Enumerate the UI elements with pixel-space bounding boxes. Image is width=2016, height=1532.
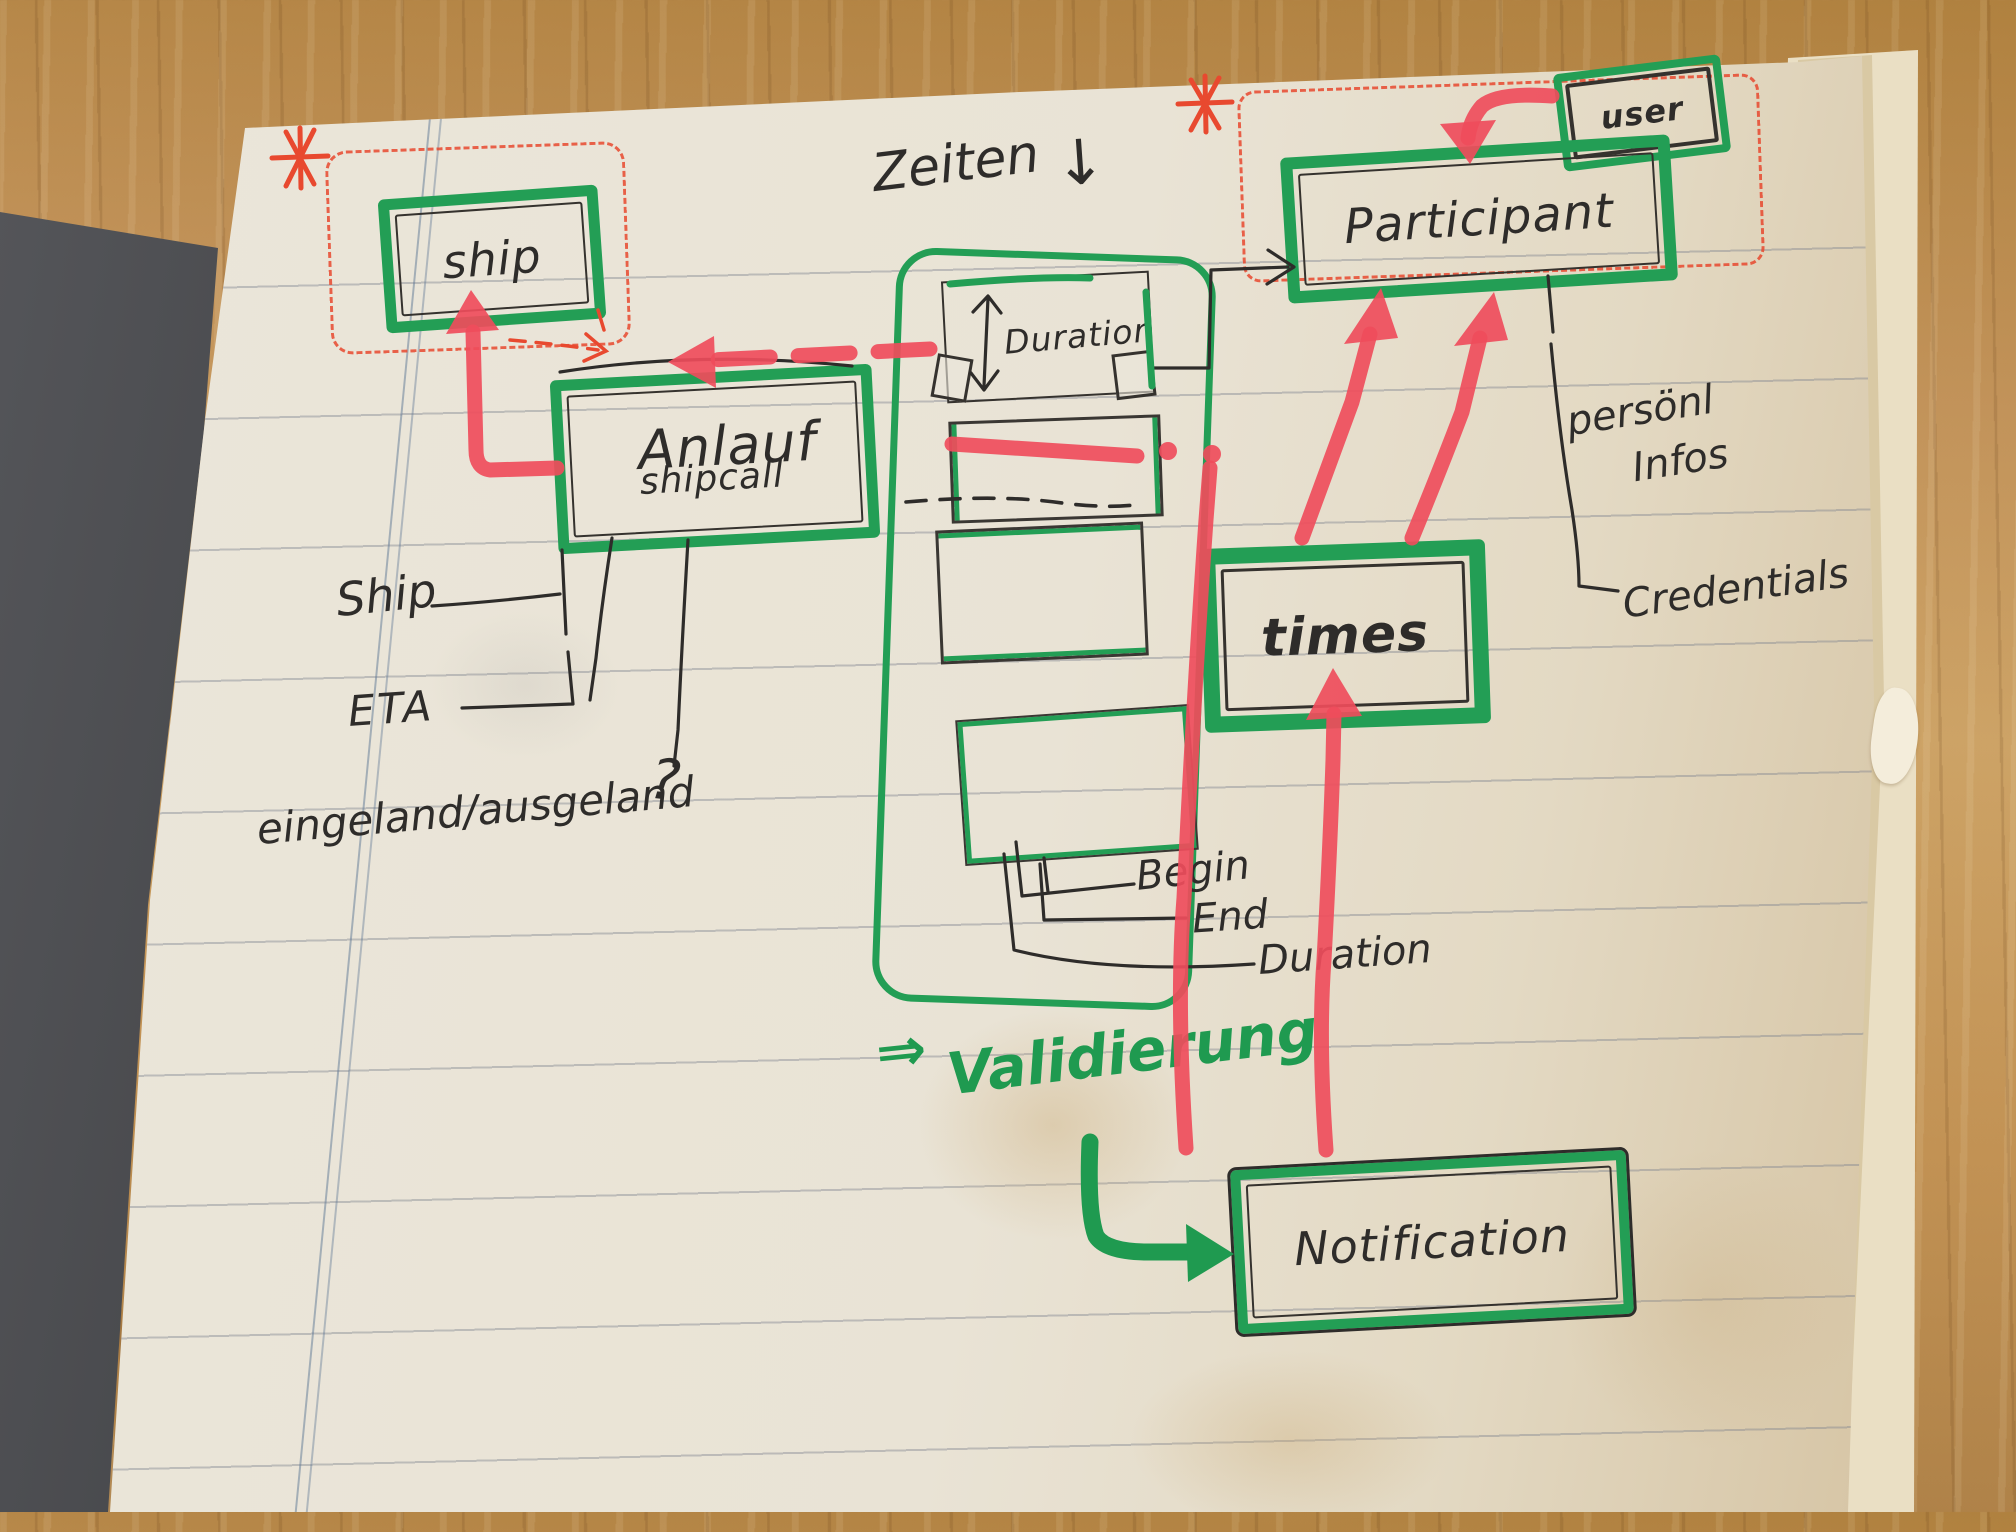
times-box: times [1199, 539, 1491, 733]
end-label: End [1190, 891, 1269, 942]
zeit-row-box-3 [957, 706, 1196, 864]
zeit-row-box-2 [935, 522, 1149, 665]
zeit-row-box-1 [948, 414, 1163, 523]
zeiten-down-arrow-icon: ↓ [1052, 124, 1109, 200]
duration-corner-square-right [1111, 350, 1156, 401]
anlauf-box: Anlauf shipcall [550, 364, 881, 555]
ship-attr-label: Ship [333, 563, 438, 627]
notification-box: Notification [1230, 1150, 1634, 1335]
eta-label: ETA [346, 681, 435, 736]
notebook-photo: { "diagram": { "nodes": { "ship": "ship"… [0, 0, 2016, 1512]
ship-label: ship [441, 229, 544, 290]
validierung-implies-icon: ⇒ [872, 1014, 929, 1089]
duration-corner-square-left [930, 353, 973, 403]
ship-box: ship [378, 184, 607, 333]
times-label: times [1260, 603, 1430, 669]
participant-box: Participant [1280, 134, 1678, 304]
